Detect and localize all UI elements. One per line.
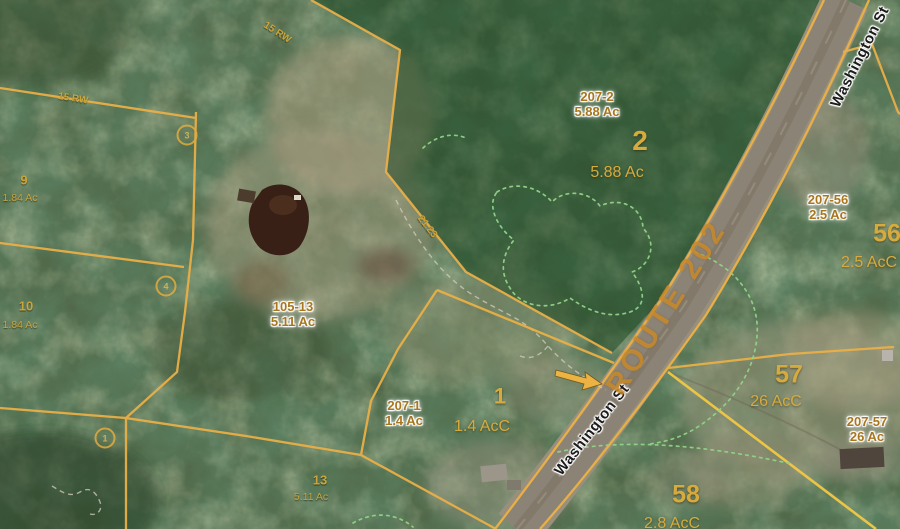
parcel-id: 207-1 (385, 399, 423, 414)
parcel-id: 105-13 (271, 300, 315, 315)
parcel-area: 26 Ac (847, 430, 887, 445)
lot-number-10: 10 (19, 300, 33, 315)
lot-area-2: 5.88 Ac (590, 164, 643, 182)
lot-area-13: 5.11 Ac (294, 491, 328, 503)
lot-number-58: 58 (672, 481, 700, 510)
parcel-area: 1.4 Ac (385, 414, 423, 429)
haze-overlay (0, 0, 900, 529)
parcel-id: 207-57 (847, 415, 887, 430)
lot-area-57: 26 AcC (750, 393, 802, 411)
parcel-label-105-13: 105-13 5.11 Ac (271, 300, 315, 330)
parcel-label-207-57: 207-57 26 Ac (847, 415, 887, 445)
parcel-area: 5.88 Ac (574, 105, 619, 120)
lot-area-1: 1.4 AcC (454, 418, 510, 436)
lot-number-57: 57 (775, 361, 803, 390)
survey-marker-number: 1 (102, 433, 107, 443)
survey-marker-number: 3 (184, 130, 189, 140)
survey-marker-number: 4 (163, 281, 168, 291)
survey-marker-3: 3 (177, 125, 198, 146)
map-canvas (0, 0, 900, 529)
survey-marker-4: 4 (156, 276, 177, 297)
lot-area-58: 2.8 AcC (644, 515, 700, 529)
survey-marker-1: 1 (95, 428, 116, 449)
lot-area-9: 1.84 Ac (2, 192, 37, 204)
parcel-label-207-1: 207-1 1.4 Ac (385, 399, 423, 429)
lot-number-9: 9 (20, 174, 27, 189)
lot-area-56: 2.5 AcC (841, 254, 897, 272)
parcel-area: 2.5 Ac (808, 208, 848, 223)
lot-number-2: 2 (632, 125, 648, 157)
lot-number-1: 1 (494, 383, 506, 408)
lot-number-56: 56 (873, 220, 900, 249)
lot-area-10: 1.84 Ac (2, 319, 37, 331)
parcel-area: 5.11 Ac (271, 315, 315, 330)
parcel-id: 207-56 (808, 193, 848, 208)
lot-number-13: 13 (313, 474, 327, 489)
parcel-id: 207-2 (574, 90, 619, 105)
gis-aerial-parcel-map[interactable]: 207-2 5.88 Ac 105-13 5.11 Ac 207-1 1.4 A… (0, 0, 900, 529)
parcel-label-207-56: 207-56 2.5 Ac (808, 193, 848, 223)
parcel-label-207-2: 207-2 5.88 Ac (574, 90, 619, 120)
